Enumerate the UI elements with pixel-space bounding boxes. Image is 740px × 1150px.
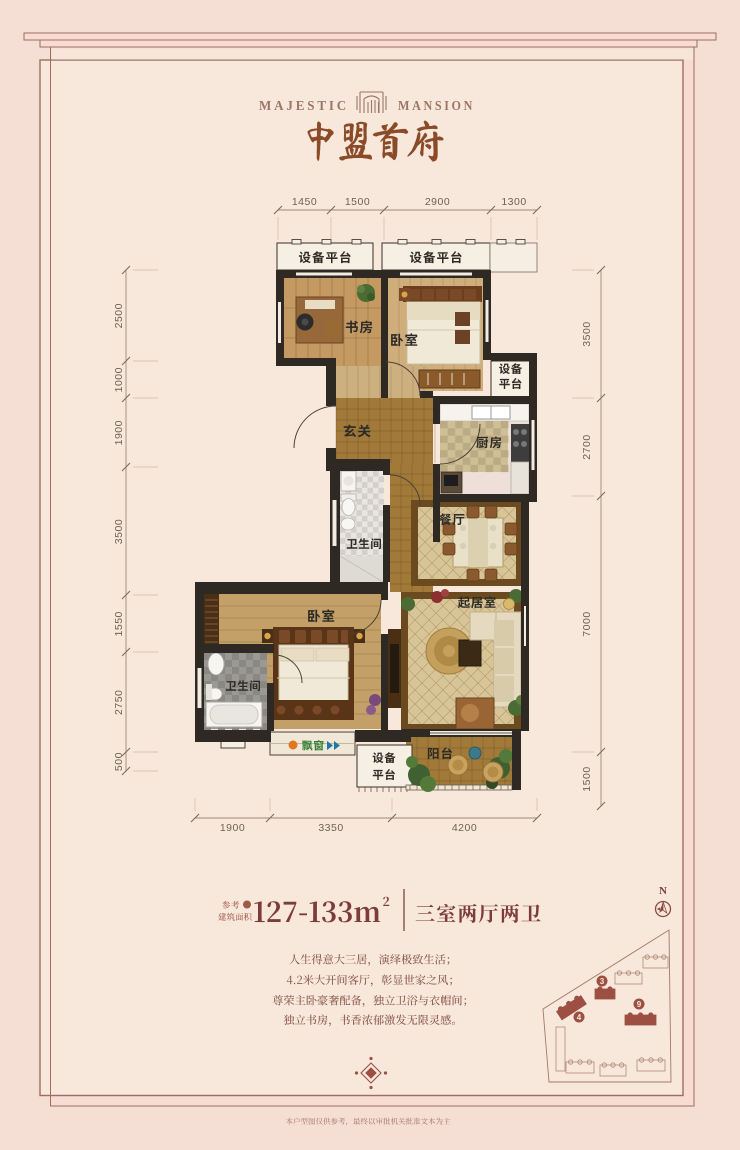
svg-text:MANSION: MANSION [398,98,475,113]
svg-text:2700: 2700 [581,434,593,459]
svg-text:1450: 1450 [292,196,317,208]
svg-text:3350: 3350 [318,822,343,834]
svg-text:N: N [659,885,667,897]
svg-text:3500: 3500 [113,519,125,544]
svg-text:2500: 2500 [113,303,125,328]
svg-text:1500: 1500 [581,766,593,791]
svg-text:4: 4 [577,1013,582,1022]
svg-text:3: 3 [600,977,605,986]
svg-text:1500: 1500 [345,196,370,208]
svg-text:MAJESTIC: MAJESTIC [259,98,349,113]
svg-text:1550: 1550 [113,611,125,636]
svg-text:2900: 2900 [425,196,450,208]
svg-text:1000: 1000 [113,367,125,392]
svg-text:7000: 7000 [581,611,593,636]
svg-text:1900: 1900 [220,822,245,834]
svg-text:3500: 3500 [581,321,593,346]
svg-text:1900: 1900 [113,420,125,445]
svg-text:1300: 1300 [501,196,526,208]
svg-text:9: 9 [637,1000,642,1009]
svg-text:2750: 2750 [113,690,125,715]
svg-text:4200: 4200 [452,822,477,834]
svg-text:500: 500 [113,752,125,771]
